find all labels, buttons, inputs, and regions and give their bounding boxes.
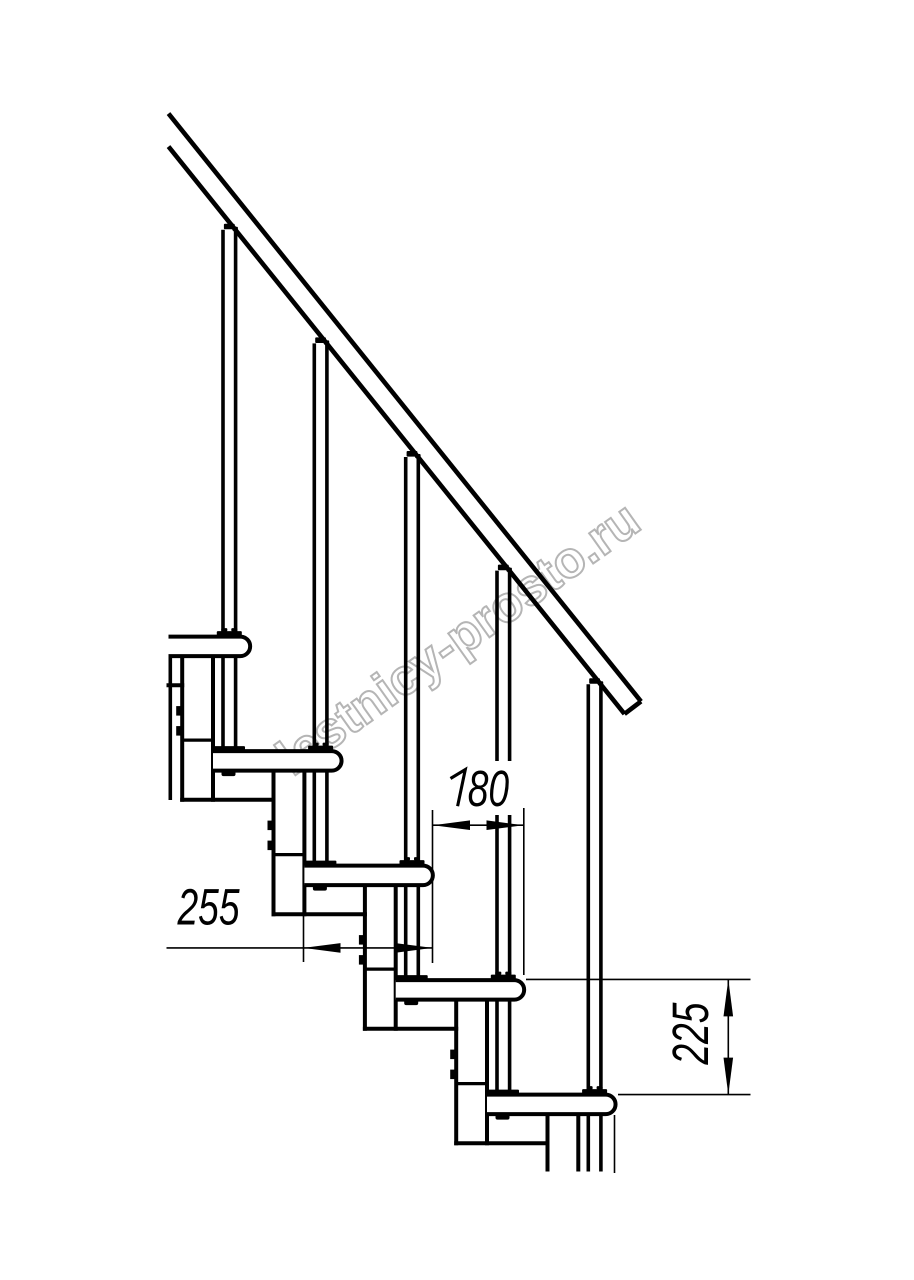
svg-text:80: 80	[468, 762, 510, 818]
svg-text:225: 225	[663, 1002, 719, 1065]
svg-text:255: 255	[177, 880, 240, 936]
